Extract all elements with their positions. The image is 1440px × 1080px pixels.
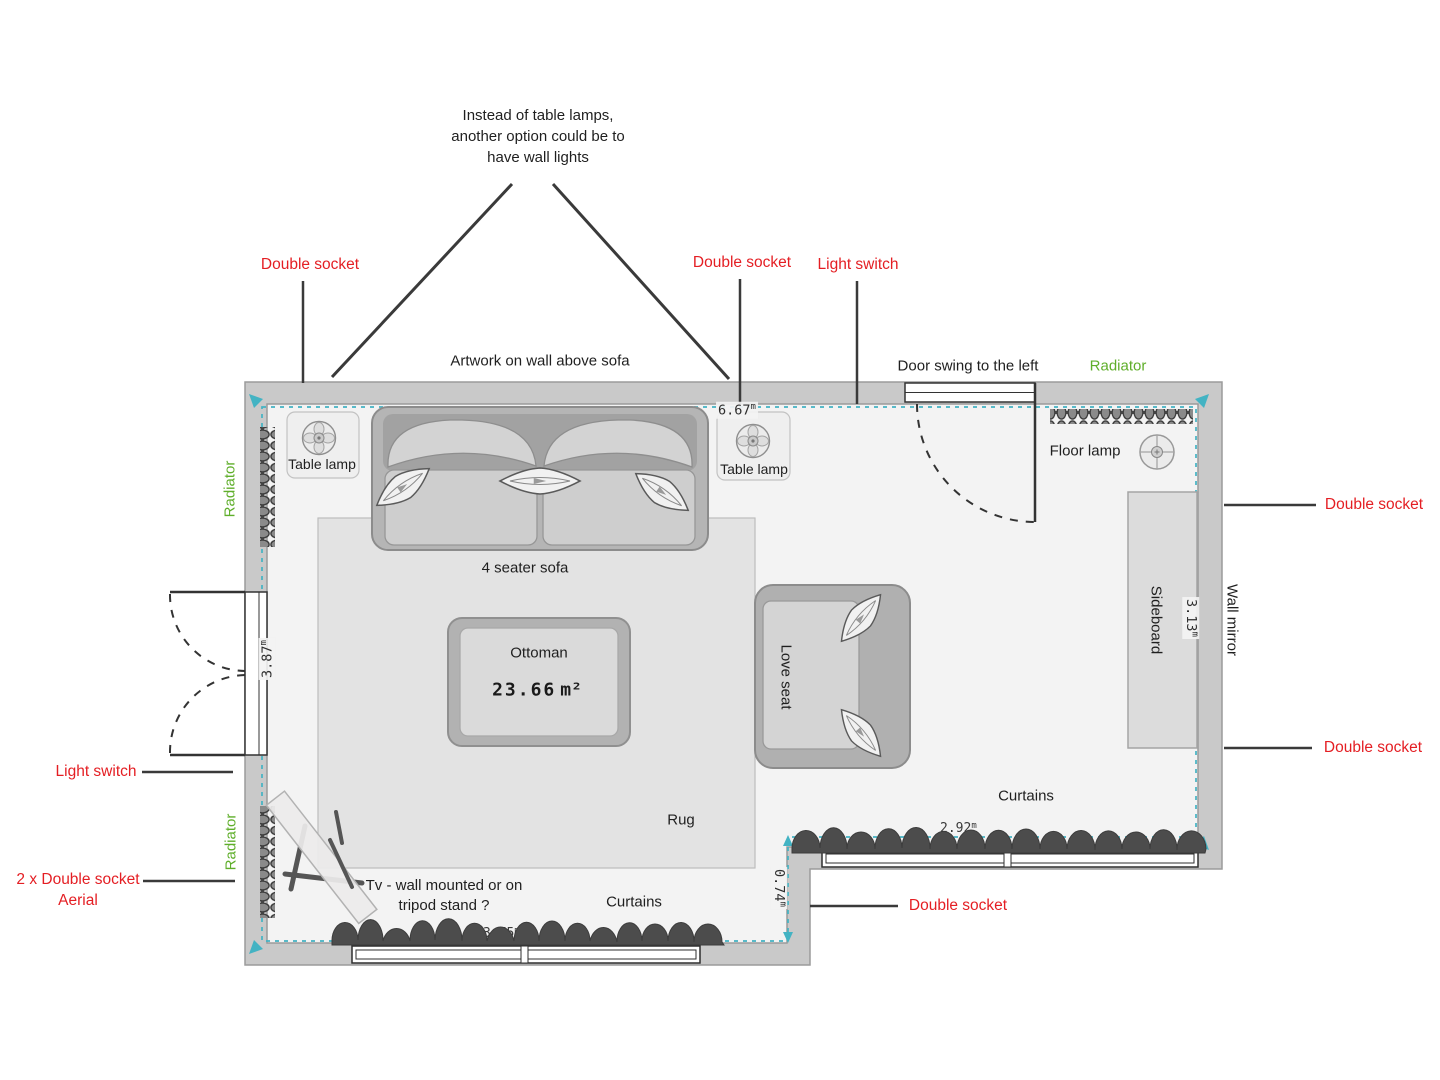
wall-lights-note-line1: Instead of table lamps,: [451, 105, 624, 126]
wall-lights-note: Instead of table lamps, another option c…: [451, 105, 624, 168]
room-height-right-dimension: 3.13m: [1183, 597, 1200, 639]
sideboard-label: Sideboard: [1148, 586, 1165, 654]
floor-area-label: 23.66m²: [492, 680, 582, 701]
sofa-label: 4 seater sofa: [482, 560, 569, 577]
table-lamp-label-left: Table lamp: [288, 456, 356, 472]
tv-note: Tv - wall mounted or on tripod stand ?: [366, 876, 523, 916]
light-switch-label-left: Light switch: [56, 763, 137, 781]
aerial-socket-label: 2 x Double socket Aerial: [16, 869, 139, 911]
pointer-line-wall-light-right: [553, 184, 729, 379]
wall-lights-note-line2: another option could be to: [451, 126, 624, 147]
floor-lamp[interactable]: [1140, 435, 1174, 469]
wall-mirror-label: Wall mirror: [1224, 584, 1241, 656]
light-switch-label-top: Light switch: [818, 256, 899, 274]
door-swing-arc: [170, 675, 245, 753]
door-left[interactable]: [170, 592, 267, 755]
radiator-label-top-right: Radiator: [1090, 358, 1147, 375]
aerial-socket-label-line2: Aerial: [16, 890, 139, 911]
radiator-top-right[interactable]: [1050, 409, 1193, 424]
room-height-left-dimension: 3.87m: [259, 638, 276, 680]
pointer-line-wall-light-left: [332, 184, 512, 377]
double-socket-label-right-2: Double socket: [1324, 739, 1422, 757]
table-lamp-icon: [737, 425, 770, 458]
radiator-left-top[interactable]: [260, 427, 275, 547]
floor-plan-drawing: 3.75m 2.92m: [0, 0, 1440, 1080]
room-width-dimension: 6.67m: [716, 402, 758, 419]
table-lamp-icon: [303, 422, 336, 455]
radiator-label-left-bottom: Radiator: [223, 814, 240, 871]
wall-lights-note-line3: have wall lights: [451, 147, 624, 168]
radiator-label-left-top: Radiator: [222, 461, 239, 518]
double-socket-label-top-left: Double socket: [261, 256, 359, 274]
door-swing-arc: [170, 594, 245, 671]
love-seat-label: Love seat: [778, 644, 795, 709]
tv-note-line1: Tv - wall mounted or on: [366, 876, 523, 896]
rug-label: Rug: [667, 812, 695, 829]
floor-lamp-label: Floor lamp: [1050, 443, 1121, 460]
window-bottom[interactable]: [352, 946, 700, 963]
table-lamp-label-right: Table lamp: [720, 461, 788, 477]
door-swing-note: Door swing to the left: [898, 358, 1039, 375]
floor-plan: 3.75m 2.92m Instead of table lamps, anot…: [0, 0, 1440, 1080]
tv-note-line2: tripod stand ?: [366, 896, 523, 916]
step-depth-dimension: 0.74m: [771, 867, 788, 909]
ottoman-label: Ottoman: [510, 645, 568, 662]
aerial-socket-label-line1: 2 x Double socket: [16, 869, 139, 890]
artwork-note: Artwork on wall above sofa: [450, 353, 629, 370]
radiator-left-bottom[interactable]: [260, 806, 275, 918]
curtains-label-bottom: Curtains: [606, 894, 662, 911]
curtains-label-right: Curtains: [998, 788, 1054, 805]
sofa[interactable]: [369, 407, 708, 550]
double-socket-label-bottom: Double socket: [909, 897, 1007, 915]
double-socket-label-top-center: Double socket: [693, 254, 791, 272]
double-socket-label-right-1: Double socket: [1325, 496, 1423, 514]
